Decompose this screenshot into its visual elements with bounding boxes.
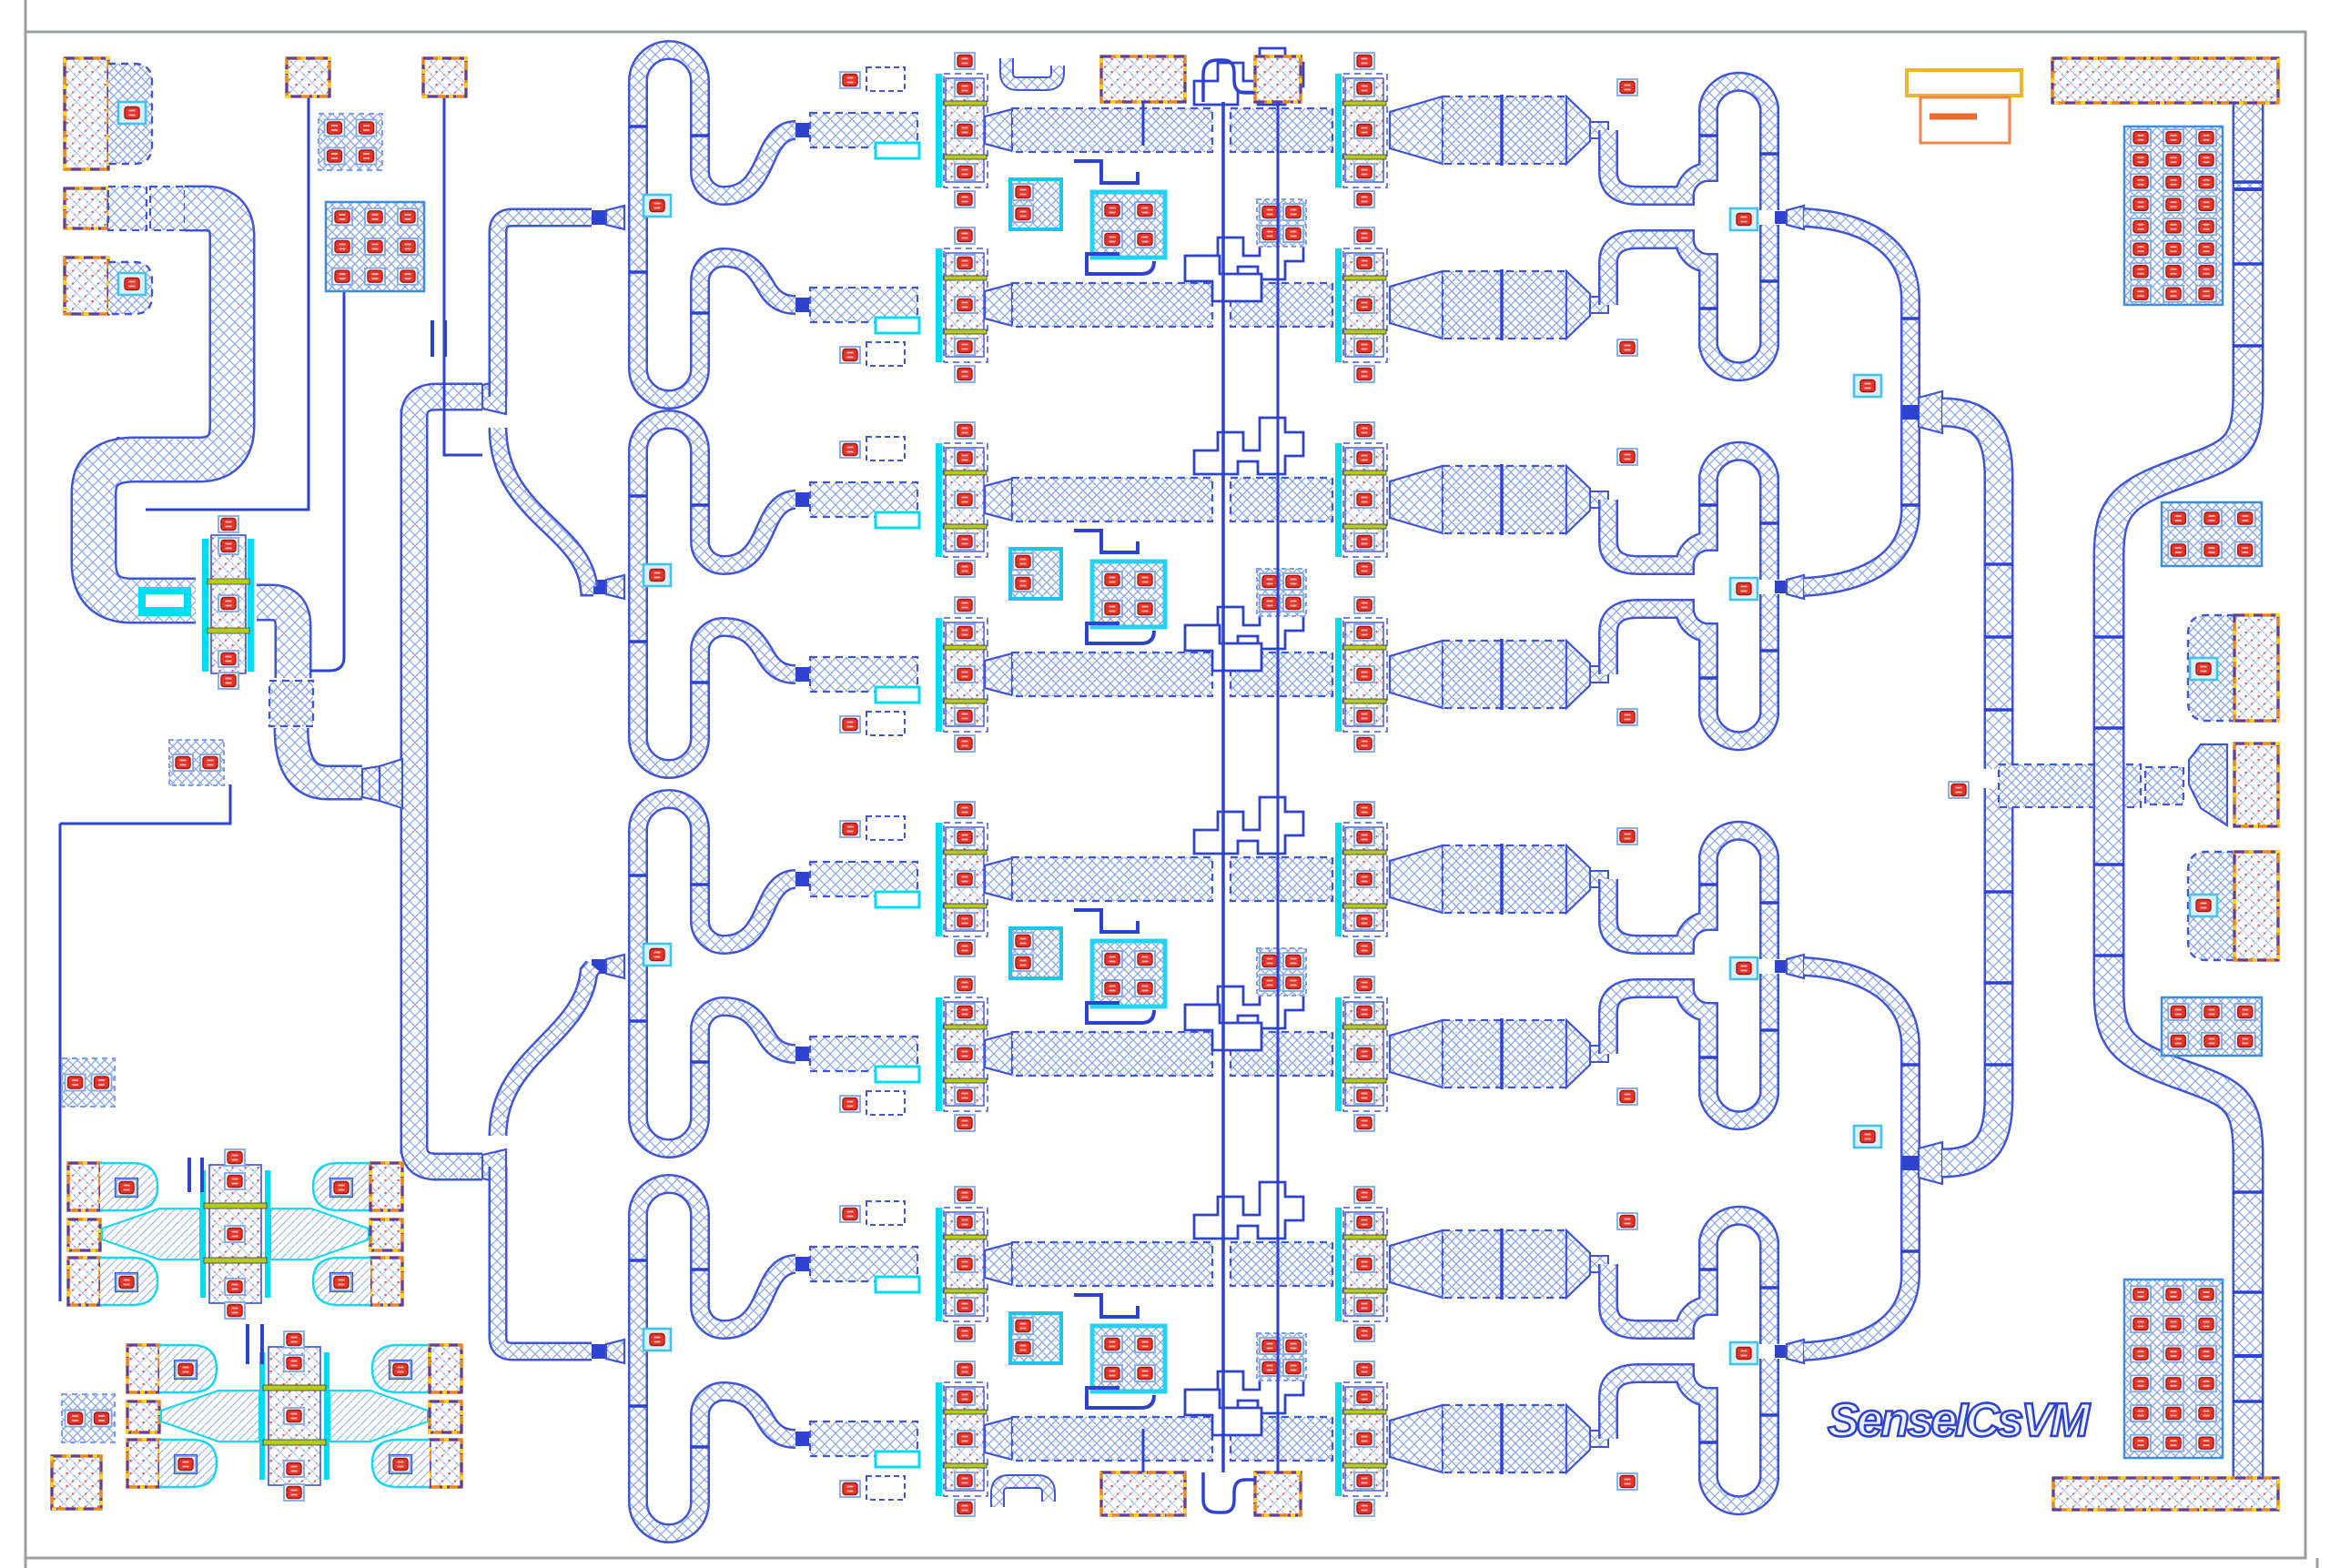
svg-text:SenseICsVM: SenseICsVM [1828, 1394, 2092, 1447]
